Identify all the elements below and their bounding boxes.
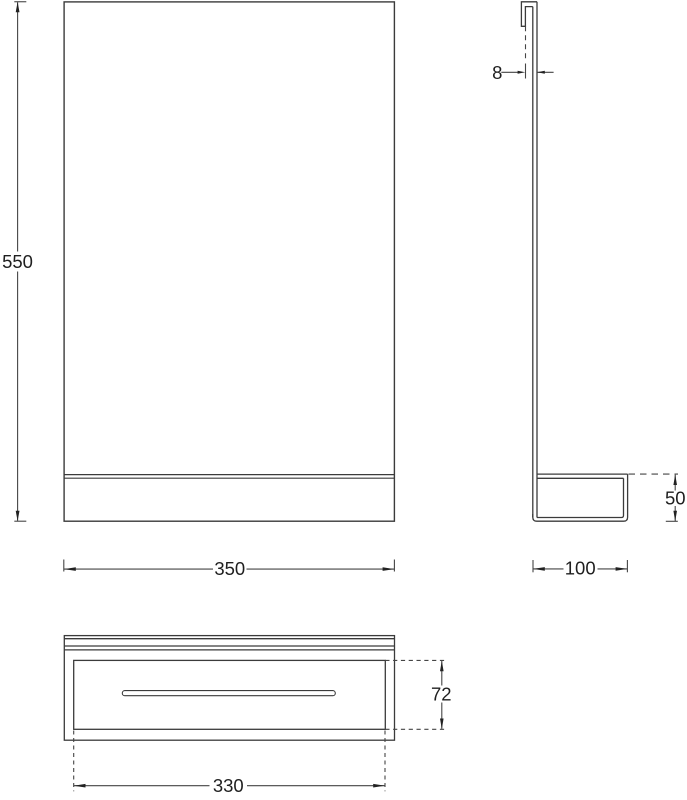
svg-text:350: 350 <box>214 558 245 579</box>
svg-text:50: 50 <box>665 488 686 509</box>
svg-text:550: 550 <box>2 251 33 272</box>
svg-text:8: 8 <box>492 62 502 83</box>
svg-text:330: 330 <box>213 775 244 796</box>
svg-text:72: 72 <box>431 683 452 704</box>
svg-text:100: 100 <box>565 558 596 579</box>
